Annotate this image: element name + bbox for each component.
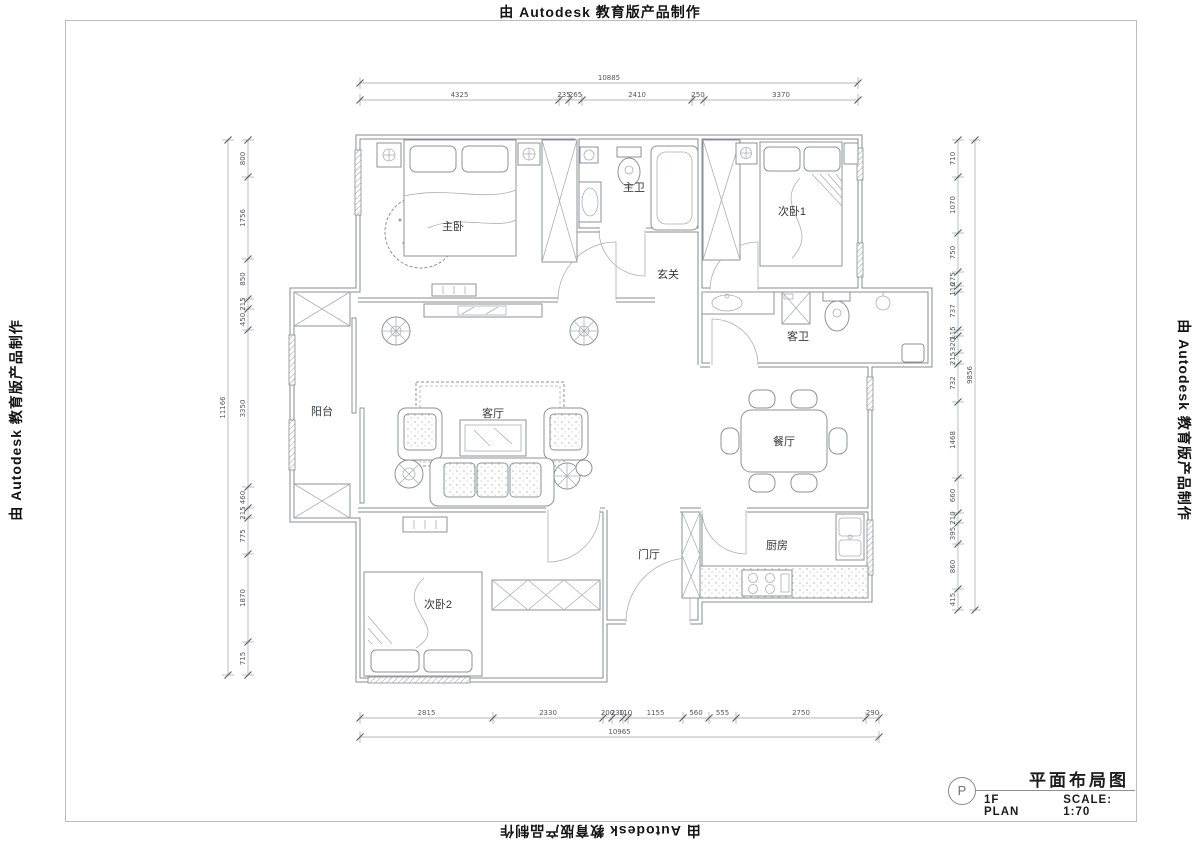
nightstand: [736, 143, 757, 164]
side-table: [395, 460, 423, 488]
title-block: 平面布局图 P 1F PLAN SCALE: 1:70: [938, 760, 1135, 820]
room-label-dining-room: 餐厅: [773, 434, 795, 448]
guest-bath-shower-corner: [902, 344, 924, 362]
water-heater: [876, 296, 890, 310]
sink: [580, 147, 598, 163]
dim-value: 660: [949, 489, 957, 502]
dim-value: 2815: [418, 709, 436, 717]
kitchen-fixtures: [700, 514, 868, 598]
plan-symbol: P: [948, 777, 976, 805]
dim-value: 850: [239, 272, 247, 285]
bedroom2-furniture: [736, 142, 858, 266]
kitchen-tall-cabinet: [682, 512, 700, 598]
dim-value: 210: [949, 511, 957, 524]
nightstand: [518, 143, 540, 165]
dim-value: 115: [949, 326, 957, 339]
balcony-column-top: [294, 292, 350, 326]
title-block-divider: [976, 790, 1135, 791]
dim-value: 800: [239, 152, 247, 165]
coffee-table: [460, 420, 526, 456]
kitchen-sink: [836, 514, 864, 560]
room-label-entry-hall: 玄关: [657, 267, 679, 281]
bedroom2-wardrobe: [703, 140, 740, 260]
stove: [742, 570, 792, 596]
nightstand: [377, 143, 401, 167]
balcony-column-bottom: [294, 484, 350, 518]
bedroom3-furniture: [364, 517, 482, 676]
dim-value: 265: [569, 91, 582, 99]
drawing-sheet: 由 Autodesk 教育版产品制作 由 Autodesk 教育版产品制作 由 …: [0, 0, 1200, 842]
armchair: [398, 408, 442, 460]
dim-value: 750: [949, 246, 957, 259]
washing-machine: [782, 292, 810, 324]
foyer-closet: [492, 580, 600, 610]
ceiling-medallion: [570, 317, 598, 345]
dim-value: 215: [949, 352, 957, 365]
room-label-bedroom3: 次卧2: [424, 597, 452, 611]
dim-value: 290: [866, 709, 879, 717]
dim-value: 4325: [451, 91, 469, 99]
dim-value: 737: [949, 304, 957, 317]
dim-value: 775: [239, 529, 247, 542]
plan-name: 1F PLAN: [984, 794, 1033, 818]
dim-value: 1756: [239, 209, 247, 227]
room-label-balcony: 阳台: [311, 404, 333, 418]
dim-value: 3370: [772, 91, 790, 99]
room-label-bedroom2: 次卧1: [778, 204, 806, 218]
hall-cabinet: [432, 284, 476, 296]
dim-value: 215: [239, 297, 247, 310]
dim-value: 560: [689, 709, 702, 717]
toilet-tank: [617, 147, 641, 157]
master-bedroom-furniture: [377, 140, 540, 268]
dim-value: 320: [949, 338, 957, 351]
dim-value: 10885: [598, 74, 620, 82]
plan-title: 平面布局图: [1029, 766, 1129, 791]
plan-scale: SCALE: 1:70: [1063, 794, 1135, 818]
vanity-counter: [702, 292, 774, 314]
ceiling-medallion: [382, 317, 410, 345]
dim-value: 1070: [949, 196, 957, 214]
dim-value: 460: [239, 491, 247, 504]
master-wardrobe: [542, 140, 577, 262]
room-label-kitchen: 厨房: [766, 539, 788, 552]
dim-value: 715: [239, 652, 247, 665]
bathtub: [651, 146, 698, 230]
dim-value: 215: [239, 506, 247, 519]
room-label-guest-bath: 客卫: [787, 329, 809, 343]
dim-value: 10965: [608, 728, 630, 736]
dim-value: 9856: [966, 366, 974, 384]
dim-value: 1468: [949, 431, 957, 449]
room-label-master-bath: 主卫: [623, 181, 645, 194]
dim-value: 1155: [647, 709, 665, 717]
dim-value: 860: [949, 560, 957, 573]
room-label-foyer: 门厅: [638, 547, 660, 561]
dim-value: 3350: [239, 400, 247, 418]
floor-plan-drawing: 主卧 主卫 次卧1 玄关 客卫 阳台 客厅 餐厅 门厅 厨房 次卧2 43252…: [0, 0, 1200, 842]
dim-value: 250: [691, 91, 704, 99]
guest-bath-fixtures: [702, 291, 890, 331]
dim-value: 2750: [792, 709, 810, 717]
living-room-furniture: [382, 304, 598, 506]
dim-value: 555: [716, 709, 729, 717]
dim-value: 2410: [628, 91, 646, 99]
nightstand: [844, 143, 858, 164]
plant: [554, 460, 592, 489]
dim-value: 710: [949, 152, 957, 165]
dim-value: 110: [619, 709, 632, 717]
dim-value: 2330: [539, 709, 557, 717]
dim-value: 732: [949, 376, 957, 389]
toilet-bowl: [825, 301, 849, 331]
room-label-master-bedroom: 主卧: [442, 220, 464, 233]
dim-value: 116: [949, 282, 957, 296]
dim-value: 395: [949, 527, 957, 540]
toilet-tank: [823, 292, 850, 301]
sofa: [430, 458, 554, 506]
dim-value: 11166: [219, 396, 227, 419]
dim-value: 1870: [239, 589, 247, 607]
armchair: [544, 408, 588, 460]
tv-cabinet: [424, 304, 542, 317]
dim-value: 415: [949, 593, 957, 606]
room-label-living-room: 客厅: [482, 406, 504, 420]
dim-value: 450: [239, 313, 247, 326]
